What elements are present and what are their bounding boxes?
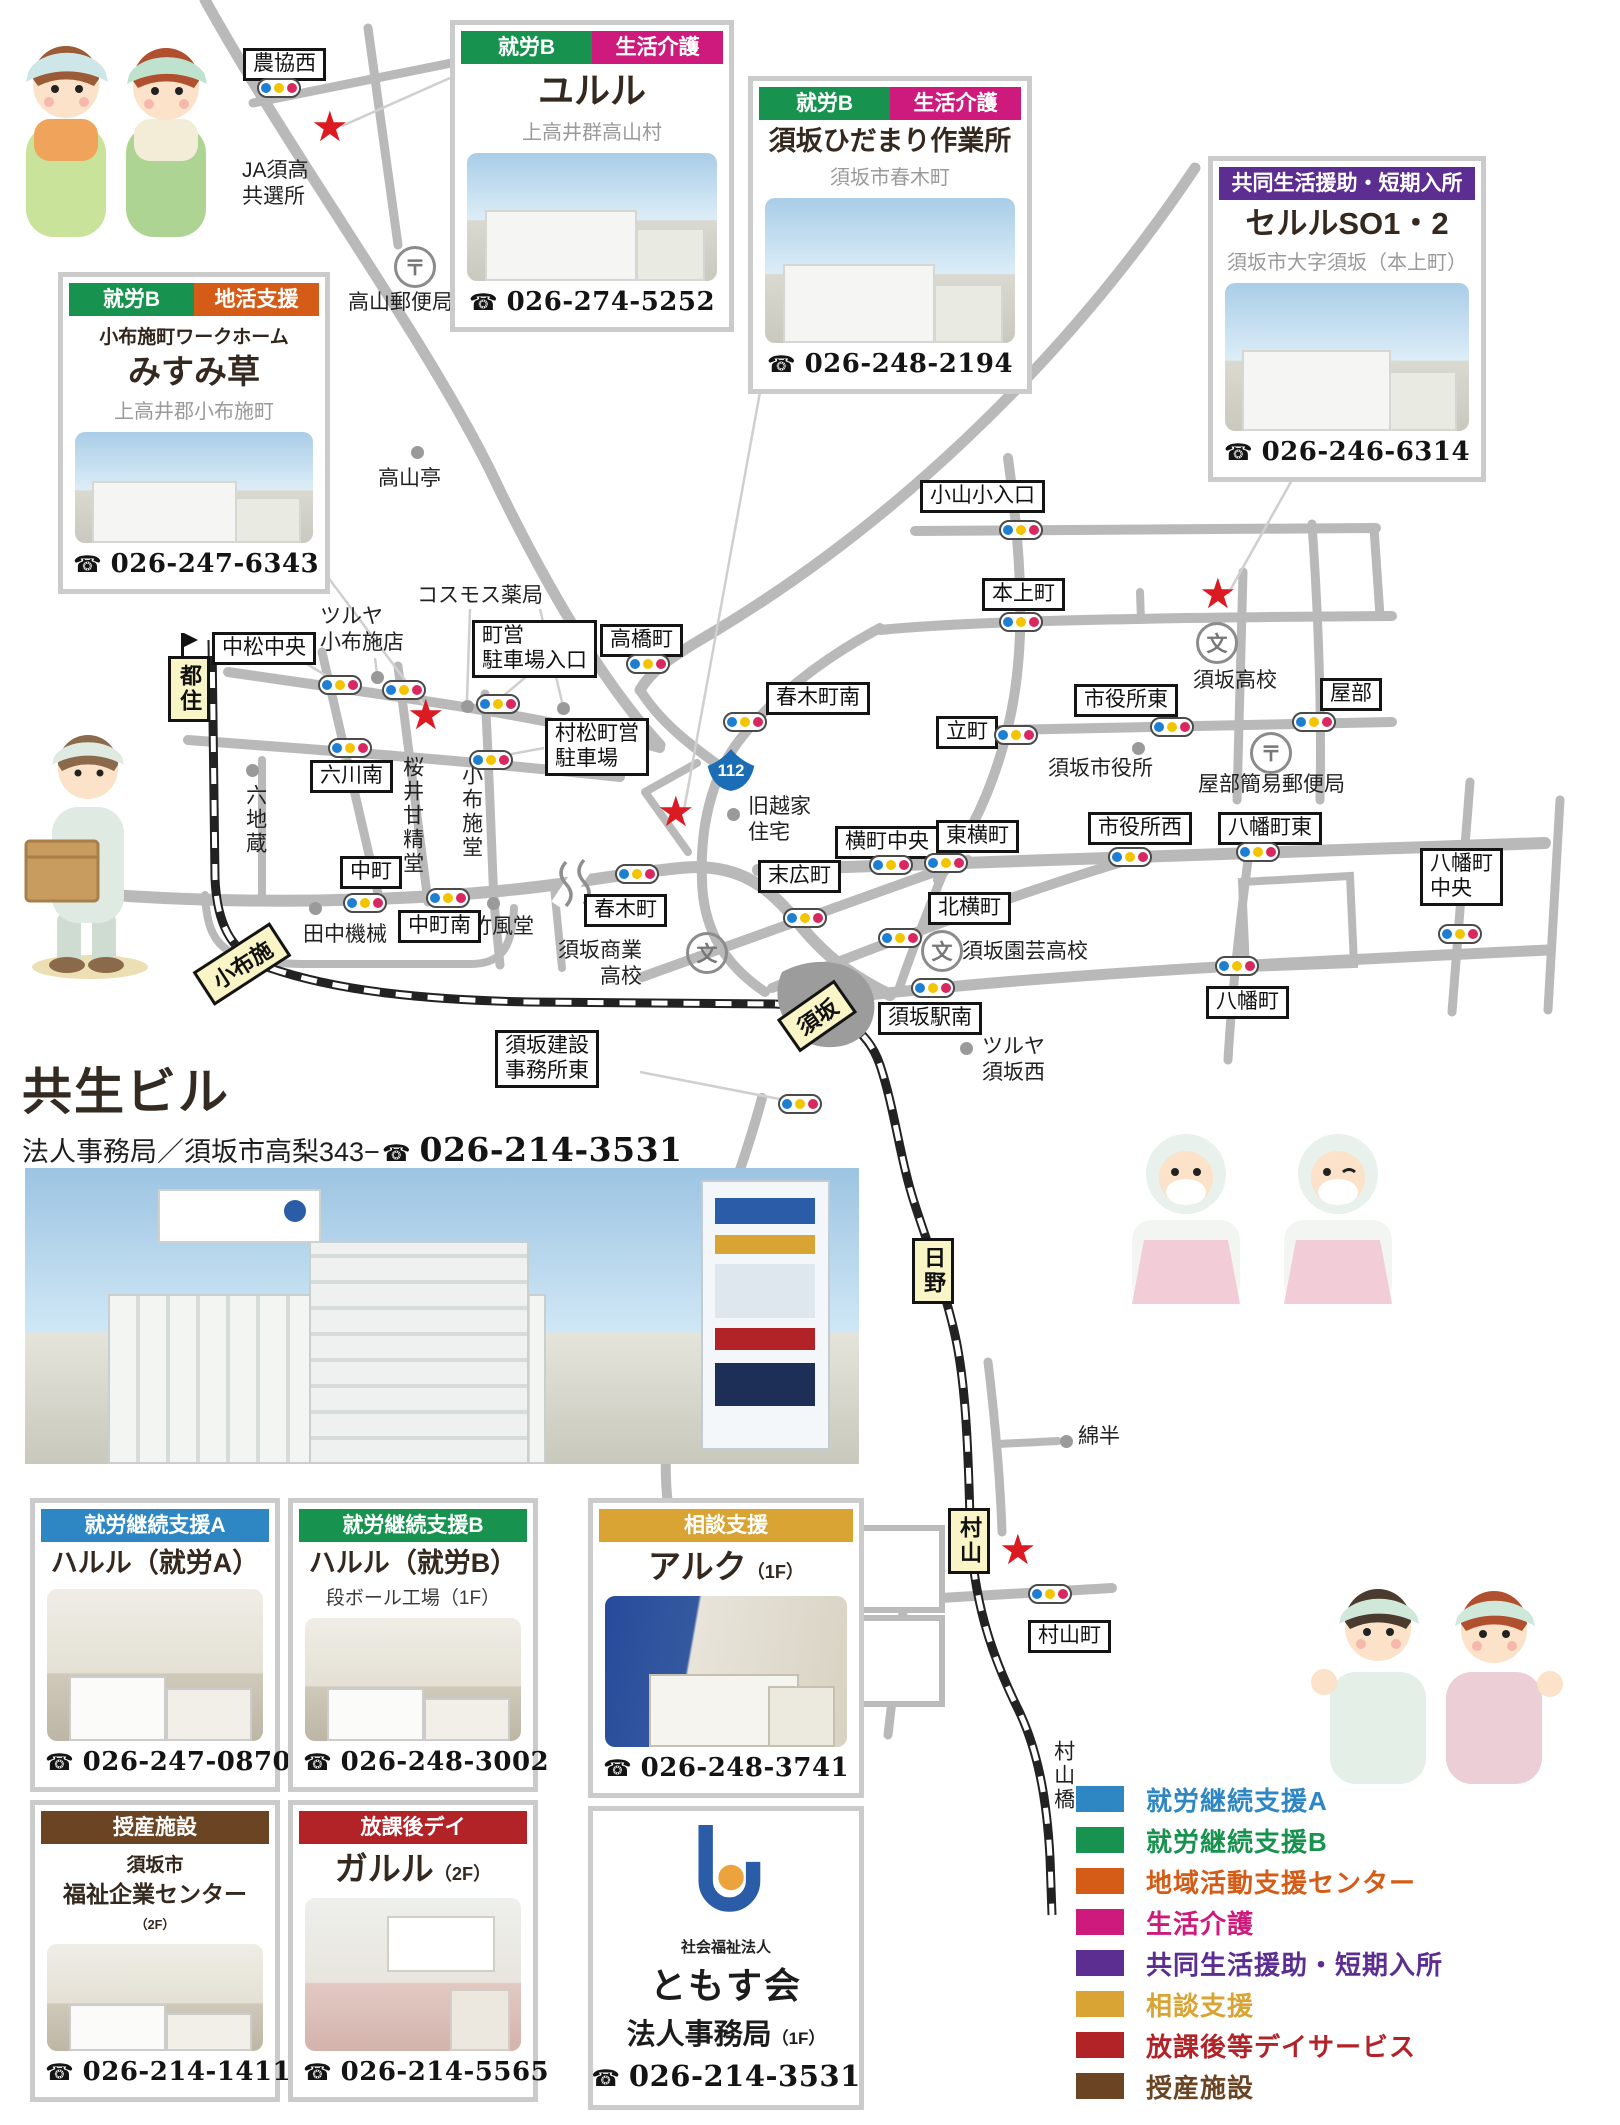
traffic-light-dot (727, 717, 737, 727)
traffic-light-dot (486, 755, 496, 765)
facility-location: 須坂市大字須坂（本上町） (1223, 246, 1471, 275)
legend-swatch (1076, 1786, 1124, 1812)
legend-item: 就労継続支援B (1076, 1827, 1443, 1853)
traffic-light-dot (915, 983, 925, 993)
traffic-light-dot (787, 913, 797, 923)
facility-card-aruku: 相談支援アルク（1F）☎ 026-248-3741 (588, 1498, 864, 1798)
traffic-light-dot (998, 730, 1008, 740)
legend-item: 就労継続支援A (1076, 1786, 1443, 1812)
service-badge: 就労B (461, 31, 592, 64)
service-badge: 就労継続支援A (41, 1509, 269, 1542)
traffic-light-dot (619, 869, 629, 879)
legend-label: 放課後等デイサービス (1146, 2027, 1416, 2064)
traffic-light-dot (443, 893, 453, 903)
map-label-boxed: 屋部 (1320, 678, 1382, 711)
facility-floor: （2F） (434, 1864, 491, 1884)
legend-label: 地域活動支援センター (1146, 1863, 1416, 1900)
facility-phone: ☎ 026-247-0870 (45, 1747, 265, 1777)
traffic-light-dot (1029, 525, 1039, 535)
facility-photo (305, 1618, 521, 1741)
traffic-light-icon (1150, 717, 1194, 737)
map-label-boxed: 春木町南 (766, 682, 870, 715)
map-label: 高山郵便局 (348, 290, 453, 316)
poi-dot (1132, 742, 1145, 755)
map-label-boxed: 須坂駅南 (878, 1002, 982, 1035)
traffic-light-icon (343, 893, 387, 913)
map-label-boxed: 八幡町 中央 (1420, 848, 1503, 906)
facility-title: 福祉企業センター（2F） (45, 1881, 265, 1934)
traffic-light-icon (999, 520, 1043, 540)
traffic-light-dot (347, 898, 357, 908)
legend-item: 放課後等デイサービス (1076, 2032, 1443, 2058)
facility-photo (765, 198, 1015, 343)
traffic-light-icon (1028, 1584, 1072, 1604)
service-badge: 地活支援 (194, 283, 319, 316)
traffic-light-icon (626, 654, 670, 674)
traffic-light-dot (954, 858, 964, 868)
facility-photo (1225, 283, 1469, 431)
service-badge: 生活介護 (890, 87, 1021, 120)
tomosukai-logo-icon (664, 1825, 788, 1930)
traffic-light-dot (480, 699, 490, 709)
traffic-light-dot (332, 743, 342, 753)
traffic-light-icon (723, 712, 767, 732)
map-label: 須坂商業 高校 (558, 938, 642, 989)
legend-swatch (1076, 2073, 1124, 2099)
building-address-text: 法人事務局／須坂市高梨343− (22, 1130, 380, 1169)
traffic-light-dot (358, 743, 368, 753)
poi-dot (487, 897, 500, 910)
traffic-light-dot (808, 1099, 818, 1109)
service-badge: 授産施設 (41, 1811, 269, 1844)
traffic-light-dot (886, 860, 896, 870)
facility-photo (305, 1898, 521, 2051)
map-label-boxed: 中町 (340, 856, 402, 889)
facility-star-marker: ★ (311, 106, 349, 148)
traffic-light-icon (1292, 712, 1336, 732)
traffic-light-dot (335, 680, 345, 690)
traffic-light-dot (1240, 847, 1250, 857)
traffic-light-icon (615, 864, 659, 884)
field-blocks (852, 1528, 942, 1704)
phone-icon: ☎ (767, 352, 805, 378)
traffic-light-dot (645, 869, 655, 879)
traffic-light-icon (999, 612, 1043, 632)
map-label-boxed: 本上町 (982, 578, 1065, 611)
map-label: 須坂園芸高校 (962, 939, 1088, 965)
traffic-light-dot (941, 858, 951, 868)
service-badge: 就労B (759, 87, 890, 120)
service-badges: 就労B生活介護 (759, 87, 1021, 120)
facility-phone: ☎ 026-214-5565 (303, 2057, 523, 2087)
traffic-light-icon (911, 978, 955, 998)
facility-title: セルルSO1・2 (1223, 206, 1471, 242)
facility-star-marker: ★ (1199, 573, 1237, 615)
service-badges: 就労B生活介護 (461, 31, 723, 64)
traffic-light-dot (1455, 929, 1465, 939)
legend: 就労継続支援A就労継続支援B地域活動支援センター生活介護共同生活援助・短期入所相… (1076, 1786, 1443, 2099)
facility-phone: ☎ 026-247-6343 (73, 549, 315, 579)
map-label: 綿半 (1078, 1424, 1120, 1450)
traffic-light-icon (878, 928, 922, 948)
traffic-light-dot (1245, 961, 1255, 971)
traffic-light-icon (869, 855, 913, 875)
school-icon: 文 (686, 932, 728, 974)
map-label: 高山亭 (378, 466, 441, 492)
traffic-light-dot (1029, 617, 1039, 627)
traffic-light-dot (1003, 525, 1013, 535)
station-badge: 日野 (912, 1238, 954, 1304)
traffic-light-dot (1219, 961, 1229, 971)
building-address: 法人事務局／須坂市高梨343− ☎ 026-214-3531 (22, 1130, 683, 1169)
phone-icon: ☎ (303, 1750, 341, 1776)
traffic-light-dot (656, 659, 666, 669)
traffic-light-dot (345, 743, 355, 753)
traffic-light-icon (476, 694, 520, 714)
station-badge: 村山 (948, 1508, 990, 1574)
poi-dot (371, 671, 384, 684)
traffic-light-icon (1215, 956, 1259, 976)
map-label: 六地蔵 (242, 784, 268, 856)
traffic-light-dot (632, 869, 642, 879)
facility-phone: ☎ 026-246-6314 (1223, 437, 1471, 467)
map-label-boxed: 末広町 (758, 860, 841, 893)
facility-title: ガルル（2F） (303, 1850, 523, 1888)
service-badge: 放課後デイ (299, 1811, 527, 1844)
post-office-icon: 〒 (394, 246, 436, 288)
map-label: 小布施堂 (458, 764, 484, 860)
legend-item: 相談支援 (1076, 1991, 1443, 2017)
phone-icon: ☎ (603, 1756, 641, 1782)
facility-phone: ☎ 026-214-1411 (45, 2057, 265, 2087)
map-label-boxed: 小山小入口 (920, 480, 1045, 513)
traffic-light-dot (322, 680, 332, 690)
traffic-light-icon (994, 725, 1038, 745)
traffic-light-dot (873, 860, 883, 870)
legend-swatch (1076, 1868, 1124, 1894)
service-badge: 就労B (69, 283, 194, 316)
traffic-light-dot (643, 659, 653, 669)
map-label-boxed: 市役所東 (1074, 684, 1178, 717)
traffic-light-dot (928, 858, 938, 868)
traffic-light-icon (426, 888, 470, 908)
traffic-light-dot (882, 933, 892, 943)
map-label: 旧越家 住宅 (748, 794, 811, 845)
map-label-boxed: 北横町 (928, 892, 1011, 925)
traffic-light-dot (813, 913, 823, 923)
traffic-light-dot (1266, 847, 1276, 857)
legend-item: 生活介護 (1076, 1909, 1443, 1935)
service-badge: 相談支援 (599, 1509, 853, 1542)
station-badge: 都住 (168, 656, 210, 722)
traffic-light-dot (899, 860, 909, 870)
traffic-light-dot (753, 717, 763, 727)
map-label-boxed: 六川南 (310, 760, 393, 793)
facility-star-marker: ★ (999, 1529, 1037, 1571)
phone-icon: ☎ (45, 2060, 83, 2086)
map-label-boxed: 村松町営 駐車場 (545, 718, 649, 776)
facility-title: ハルル（就労A） (45, 1548, 265, 1579)
traffic-light-dot (456, 893, 466, 903)
facility-photo (47, 1944, 263, 2051)
facility-card-hidamari: 就労B生活介護須坂ひだまり作業所須坂市春木町☎ 026-248-2194 (748, 76, 1032, 394)
map-label: ツルヤ 須坂西 (982, 1034, 1045, 1085)
map-label: 屋部簡易郵便局 (1198, 772, 1345, 798)
kyosei-building-section: 共生ビル 法人事務局／須坂市高梨343− ☎ 026-214-3531 (22, 1052, 683, 1169)
poi-dot (727, 808, 740, 821)
map-label-boxed: 中町南 (398, 910, 481, 943)
service-badges: 授産施設 (41, 1811, 269, 1844)
facility-pretitle: 小布施町ワークホーム (73, 322, 315, 349)
map-label: ツルヤ 小布施店 (320, 604, 404, 655)
traffic-light-dot (1032, 1589, 1042, 1599)
facility-card-misumi: 就労B地活支援小布施町ワークホームみすみ草上高井郡小布施町☎ 026-247-6… (58, 272, 330, 594)
phone-icon: ☎ (1224, 440, 1262, 466)
facility-card-yururu: 就労B生活介護ユルル上高井群高山村☎ 026-274-5252 (450, 20, 734, 332)
map-label: コスモス薬局 (417, 583, 543, 609)
traffic-light-dot (1112, 852, 1122, 862)
traffic-light-dot (499, 755, 509, 765)
traffic-light-icon (1108, 847, 1152, 867)
facility-card-haruru-a: 就労継続支援Aハルル（就労A）☎ 026-247-0870 (30, 1498, 280, 1792)
traffic-light-dot (795, 1099, 805, 1109)
service-badges: 放課後デイ (299, 1811, 527, 1844)
facility-phone: ☎ 026-248-3002 (303, 1747, 523, 1777)
map-label-boxed: 市役所西 (1088, 812, 1192, 845)
building-rooftop-sign (158, 1189, 320, 1243)
poi-dot (461, 700, 474, 713)
svg-text:112: 112 (718, 761, 745, 780)
facility-location: 上高井郡小布施町 (73, 395, 315, 424)
traffic-light-dot (1024, 730, 1034, 740)
traffic-light-dot (348, 680, 358, 690)
map-label-boxed: 横町中央 (835, 826, 939, 859)
facility-card-garuru: 放課後デイガルル（2F）☎ 026-214-5565 (288, 1800, 538, 2102)
traffic-light-icon (318, 675, 362, 695)
facility-location: 須坂市春木町 (763, 161, 1017, 190)
map-label-boxed: 村山町 (1028, 1620, 1111, 1653)
legend-label: 授産施設 (1146, 2068, 1254, 2105)
post-office-icon: 〒 (1250, 732, 1292, 774)
traffic-light-dot (386, 685, 396, 695)
legend-swatch (1076, 1909, 1124, 1935)
legend-item: 授産施設 (1076, 2073, 1443, 2099)
poi-dot (411, 446, 424, 459)
map-label-boxed: 高橋町 (600, 624, 683, 657)
facility-title: ユルル (465, 70, 719, 111)
traffic-light-dot (1016, 525, 1026, 535)
traffic-light-dot (1003, 617, 1013, 627)
facility-photo (467, 153, 717, 281)
traffic-light-dot (1045, 1589, 1055, 1599)
traffic-light-dot (261, 83, 271, 93)
traffic-light-dot (895, 933, 905, 943)
phone-icon: ☎ (45, 1750, 83, 1776)
traffic-light-dot (1296, 717, 1306, 727)
service-badge: 共同生活援助・短期入所 (1219, 167, 1475, 200)
map-label-boxed: 八幡町 (1206, 986, 1289, 1019)
legend-label: 相談支援 (1146, 1986, 1254, 2023)
service-badges: 就労継続支援A (41, 1509, 269, 1542)
poi-dot (960, 1042, 973, 1055)
traffic-light-dot (1138, 852, 1148, 862)
legend-label: 共同生活援助・短期入所 (1146, 1945, 1443, 1982)
service-badges: 就労B地活支援 (69, 283, 319, 316)
corp-name: ともす会 (650, 1957, 802, 2009)
building-phone: ☎ 026-214-3531 (382, 1130, 683, 1169)
facility-photo (47, 1589, 263, 1741)
poi-dot (557, 702, 570, 715)
map-label-boxed: 八幡町東 (1218, 812, 1322, 845)
traffic-light-dot (782, 1099, 792, 1109)
facility-card-seruru: 共同生活援助・短期入所セルルSO1・2須坂市大字須坂（本上町）☎ 026-246… (1208, 156, 1486, 482)
service-badges: 相談支援 (599, 1509, 853, 1542)
facility-photo (75, 432, 313, 543)
traffic-light-dot (1180, 722, 1190, 732)
school-icon: 文 (921, 930, 963, 972)
building-signboard (701, 1180, 830, 1450)
traffic-light-dot (1154, 722, 1164, 732)
service-badge: 就労継続支援B (299, 1509, 527, 1542)
station-flag-icon (181, 633, 184, 659)
traffic-light-dot (1322, 717, 1332, 727)
map-label-boxed: 立町 (936, 716, 998, 749)
traffic-light-dot (373, 898, 383, 908)
traffic-light-dot (630, 659, 640, 669)
map-label: 須坂高校 (1193, 668, 1277, 694)
legend-swatch (1076, 1950, 1124, 1976)
map-label: 桜井甘精堂 (399, 756, 425, 876)
traffic-light-dot (287, 83, 297, 93)
route-112-badge: 112 (706, 747, 756, 798)
school-icon: 文 (1196, 622, 1238, 664)
phone-icon: ☎ (73, 552, 111, 578)
service-badges: 共同生活援助・短期入所 (1219, 167, 1475, 200)
facility-location: 上高井群高山村 (465, 116, 719, 145)
facility-floor: （1F） (747, 1562, 804, 1582)
traffic-light-icon (257, 78, 301, 98)
traffic-light-icon (778, 1094, 822, 1114)
legend-label: 就労継続支援B (1146, 1822, 1328, 1859)
facility-pretitle: 須坂市 (45, 1850, 265, 1877)
map-label-boxed: 農協西 (243, 48, 326, 81)
facility-photo (605, 1596, 847, 1747)
service-badges: 就労継続支援B (299, 1509, 527, 1542)
service-badge: 生活介護 (592, 31, 723, 64)
facility-card-haruru-b: 就労継続支援Bハルル（就労B）段ボール工場（1F）☎ 026-248-3002 (288, 1498, 538, 1792)
traffic-light-icon (783, 908, 827, 928)
facility-card-fukushi: 授産施設須坂市福祉企業センター（2F）☎ 026-214-1411 (30, 1800, 280, 2102)
map-label-boxed: 春木町 (584, 894, 667, 927)
facility-title: ハルル（就労B） (303, 1548, 523, 1579)
traffic-light-dot (274, 83, 284, 93)
facility-note: 段ボール工場（1F） (303, 1583, 523, 1610)
phone-icon: ☎ (469, 290, 507, 316)
traffic-light-dot (941, 983, 951, 993)
corp-dept: 法人事務局（1F） (627, 2011, 826, 2053)
traffic-light-icon (1236, 842, 1280, 862)
traffic-light-dot (1167, 722, 1177, 732)
building-photo (25, 1168, 859, 1464)
facility-phone: ☎ 026-274-5252 (465, 287, 719, 317)
facility-phone: ☎ 026-248-2194 (763, 349, 1017, 379)
map-label-boxed: 町営 駐車場入口 (472, 620, 597, 678)
facility-floor: （2F） (135, 1918, 175, 1932)
traffic-light-dot (1125, 852, 1135, 862)
traffic-light-dot (493, 699, 503, 709)
poi-dot (1060, 1435, 1073, 1448)
phone-icon: ☎ (303, 2060, 341, 2086)
traffic-light-icon (1438, 924, 1482, 944)
map-label-boxed: 中松中央 (212, 632, 316, 665)
traffic-light-dot (1058, 1589, 1068, 1599)
traffic-light-dot (740, 717, 750, 727)
traffic-light-dot (908, 933, 918, 943)
map-label: 須坂市役所 (1048, 756, 1153, 782)
traffic-light-dot (1468, 929, 1478, 939)
corp-type-label: 社会福祉法人 (681, 1936, 771, 1957)
facility-title: みすみ草 (73, 353, 315, 391)
phone-icon: ☎ (382, 1141, 420, 1167)
building-photo-tower (309, 1241, 530, 1464)
facility-star-marker: ★ (657, 791, 695, 833)
legend-item: 共同生活援助・短期入所 (1076, 1950, 1443, 1976)
traffic-light-dot (360, 898, 370, 908)
building-title: 共生ビル (22, 1052, 683, 1124)
traffic-light-icon (924, 853, 968, 873)
traffic-light-dot (800, 913, 810, 923)
legend-swatch (1076, 1991, 1124, 2017)
map-label: JA須高 共選所 (242, 158, 309, 209)
traffic-light-icon (469, 750, 513, 770)
legend-swatch (1076, 1827, 1124, 1853)
facility-star-marker: ★ (407, 694, 445, 736)
corp-phone: ☎ 026-214-3531 (591, 2059, 861, 2093)
poi-dot (309, 902, 322, 915)
traffic-light-dot (1309, 717, 1319, 727)
traffic-light-dot (1442, 929, 1452, 939)
traffic-light-dot (1011, 730, 1021, 740)
map-poster: 共生ビル 法人事務局／須坂市高梨343− ☎ 026-214-3531 社会福祉… (0, 0, 1620, 2125)
legend-label: 就労継続支援A (1146, 1781, 1328, 1818)
facility-phone: ☎ 026-248-3741 (603, 1753, 849, 1783)
traffic-light-dot (1253, 847, 1263, 857)
map-label: 村山橋 (1050, 1740, 1076, 1812)
legend-item: 地域活動支援センター (1076, 1868, 1443, 1894)
tomosukai-office-card: 社会福祉法人 ともす会 法人事務局（1F） ☎ 026-214-3531 (588, 1806, 864, 2110)
facility-title: 須坂ひだまり作業所 (763, 126, 1017, 157)
poi-dot (246, 764, 259, 777)
traffic-light-icon (328, 738, 372, 758)
traffic-light-dot (1016, 617, 1026, 627)
traffic-light-dot (506, 699, 516, 709)
map-label-boxed: 東横町 (936, 820, 1019, 853)
map-label: 田中機械 (303, 922, 387, 948)
legend-swatch (1076, 2032, 1124, 2058)
facility-title: アルク（1F） (603, 1548, 849, 1586)
traffic-light-dot (1232, 961, 1242, 971)
traffic-light-dot (473, 755, 483, 765)
traffic-light-dot (928, 983, 938, 993)
legend-label: 生活介護 (1146, 1904, 1254, 1941)
traffic-light-dot (430, 893, 440, 903)
phone-icon: ☎ (591, 2066, 629, 2092)
